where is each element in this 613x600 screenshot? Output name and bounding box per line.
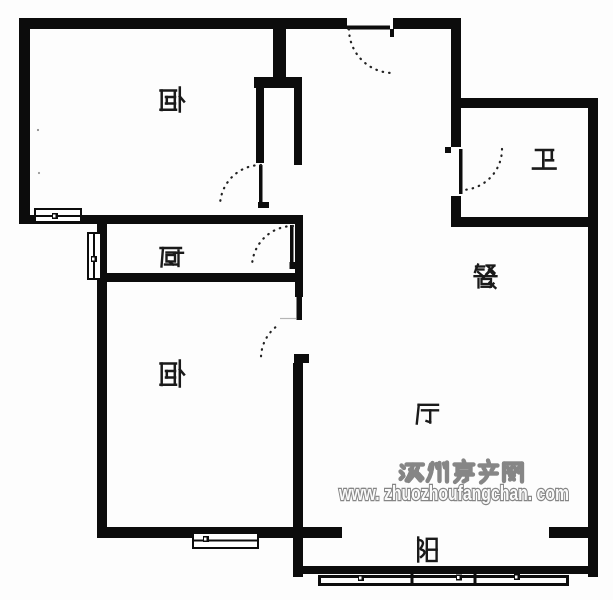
svg-text:www. zhuozhoufangchan. com: www. zhuozhoufangchan. com bbox=[338, 483, 569, 505]
